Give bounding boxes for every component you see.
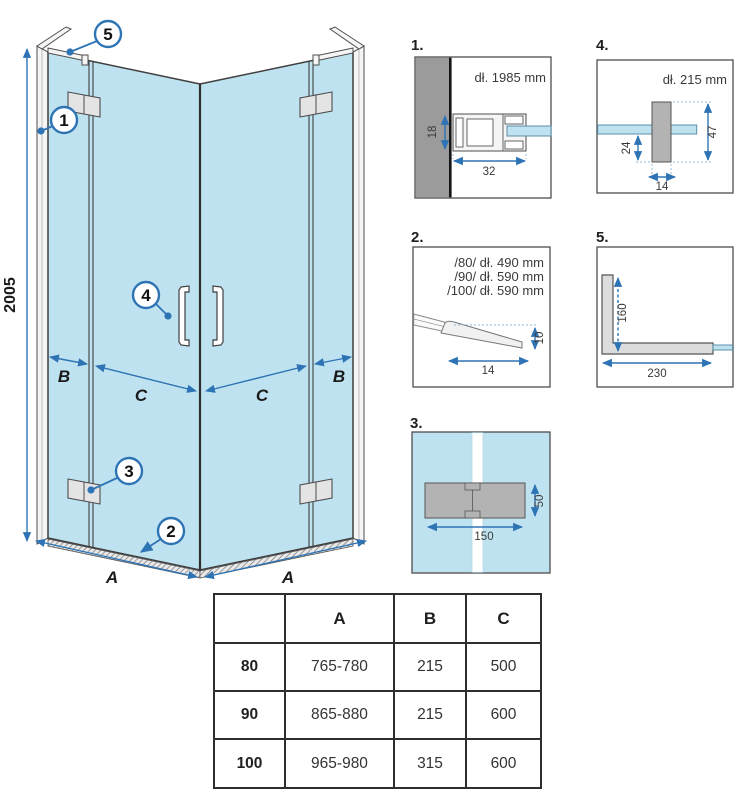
table-header-a: A xyxy=(285,594,394,643)
detail-2-length-100: /100/ dł. 590 mm xyxy=(447,283,544,298)
detail-4-length: dł. 215 mm xyxy=(663,72,727,87)
svg-text:47: 47 xyxy=(707,126,719,139)
table-header-row: A B C xyxy=(214,594,541,643)
svg-text:24: 24 xyxy=(621,141,633,154)
svg-text:10: 10 xyxy=(534,332,546,345)
size-label: 90 xyxy=(214,691,285,739)
svg-text:1: 1 xyxy=(59,111,68,130)
detail-panel-2: 2. /80/ dł. 490 mm /90/ dł. 590 mm /100/… xyxy=(408,222,558,402)
table-row: 80 765-780 215 500 xyxy=(214,643,541,691)
b-label: B xyxy=(333,367,345,386)
table-header-c: C xyxy=(466,594,541,643)
dimension-height: 2005 xyxy=(2,49,27,541)
svg-text:4: 4 xyxy=(141,286,151,305)
svg-text:14: 14 xyxy=(656,181,669,193)
svg-text:230: 230 xyxy=(647,368,666,380)
wall-profile-right xyxy=(353,46,364,544)
detail-panel-4: 4. dł. 215 mm 47 24 14 xyxy=(588,30,748,210)
detail-2-number: 2. xyxy=(411,229,424,246)
c-label: C xyxy=(135,386,148,405)
value-b: 215 xyxy=(394,643,466,691)
callout-5: 5 xyxy=(66,21,121,56)
svg-text:14: 14 xyxy=(482,365,495,377)
svg-text:3: 3 xyxy=(124,462,133,481)
b-label: B xyxy=(58,367,70,386)
svg-text:50: 50 xyxy=(534,495,546,508)
svg-text:32: 32 xyxy=(483,166,496,178)
value-c: 600 xyxy=(466,739,541,788)
dimensions-table: A B C 80 765-780 215 500 90 865-880 215 … xyxy=(213,593,542,789)
shower-enclosure-diagram: 2005 B C C B A A xyxy=(0,0,410,620)
value-c: 600 xyxy=(466,691,541,739)
glass-section xyxy=(507,126,551,136)
height-dim-label: 2005 xyxy=(2,277,19,313)
svg-text:160: 160 xyxy=(617,303,629,322)
value-a: 865-880 xyxy=(285,691,394,739)
detail-panel-1: 1. dł. 1985 mm 18 32 xyxy=(408,30,558,210)
glass-section xyxy=(713,345,733,350)
c-label: C xyxy=(256,386,269,405)
svg-text:150: 150 xyxy=(474,531,493,543)
wall-profile-left xyxy=(37,46,48,544)
detail-5-number: 5. xyxy=(596,229,609,246)
value-b: 315 xyxy=(394,739,466,788)
table-header-empty xyxy=(214,594,285,643)
table-row: 90 865-880 215 600 xyxy=(214,691,541,739)
detail-panel-5: 5. 160 230 xyxy=(588,222,748,402)
detail-panel-3: 3. 150 50 xyxy=(406,415,556,595)
detail-4-number: 4. xyxy=(596,37,609,54)
svg-text:5: 5 xyxy=(103,25,112,44)
value-c: 500 xyxy=(466,643,541,691)
detail-3-number: 3. xyxy=(410,415,423,432)
value-a: 965-980 xyxy=(285,739,394,788)
svg-text:18: 18 xyxy=(427,126,439,139)
a-label: A xyxy=(105,568,118,587)
detail-1-length: dł. 1985 mm xyxy=(474,70,546,85)
technical-drawing-page: 2005 B C C B A A xyxy=(0,0,751,800)
handle-profile-section xyxy=(652,102,671,162)
value-a: 765-780 xyxy=(285,643,394,691)
size-label: 100 xyxy=(214,739,285,788)
value-b: 215 xyxy=(394,691,466,739)
detail-2-length-80: /80/ dł. 490 mm xyxy=(454,255,544,270)
detail-2-length-90: /90/ dł. 590 mm xyxy=(454,269,544,284)
a-label: A xyxy=(281,568,294,587)
table-row: 100 965-980 315 600 xyxy=(214,739,541,788)
table-header-b: B xyxy=(394,594,466,643)
hinge-section xyxy=(425,483,525,518)
svg-text:2: 2 xyxy=(166,522,175,541)
size-label: 80 xyxy=(214,643,285,691)
glass-section xyxy=(598,125,697,134)
detail-1-number: 1. xyxy=(411,37,424,54)
